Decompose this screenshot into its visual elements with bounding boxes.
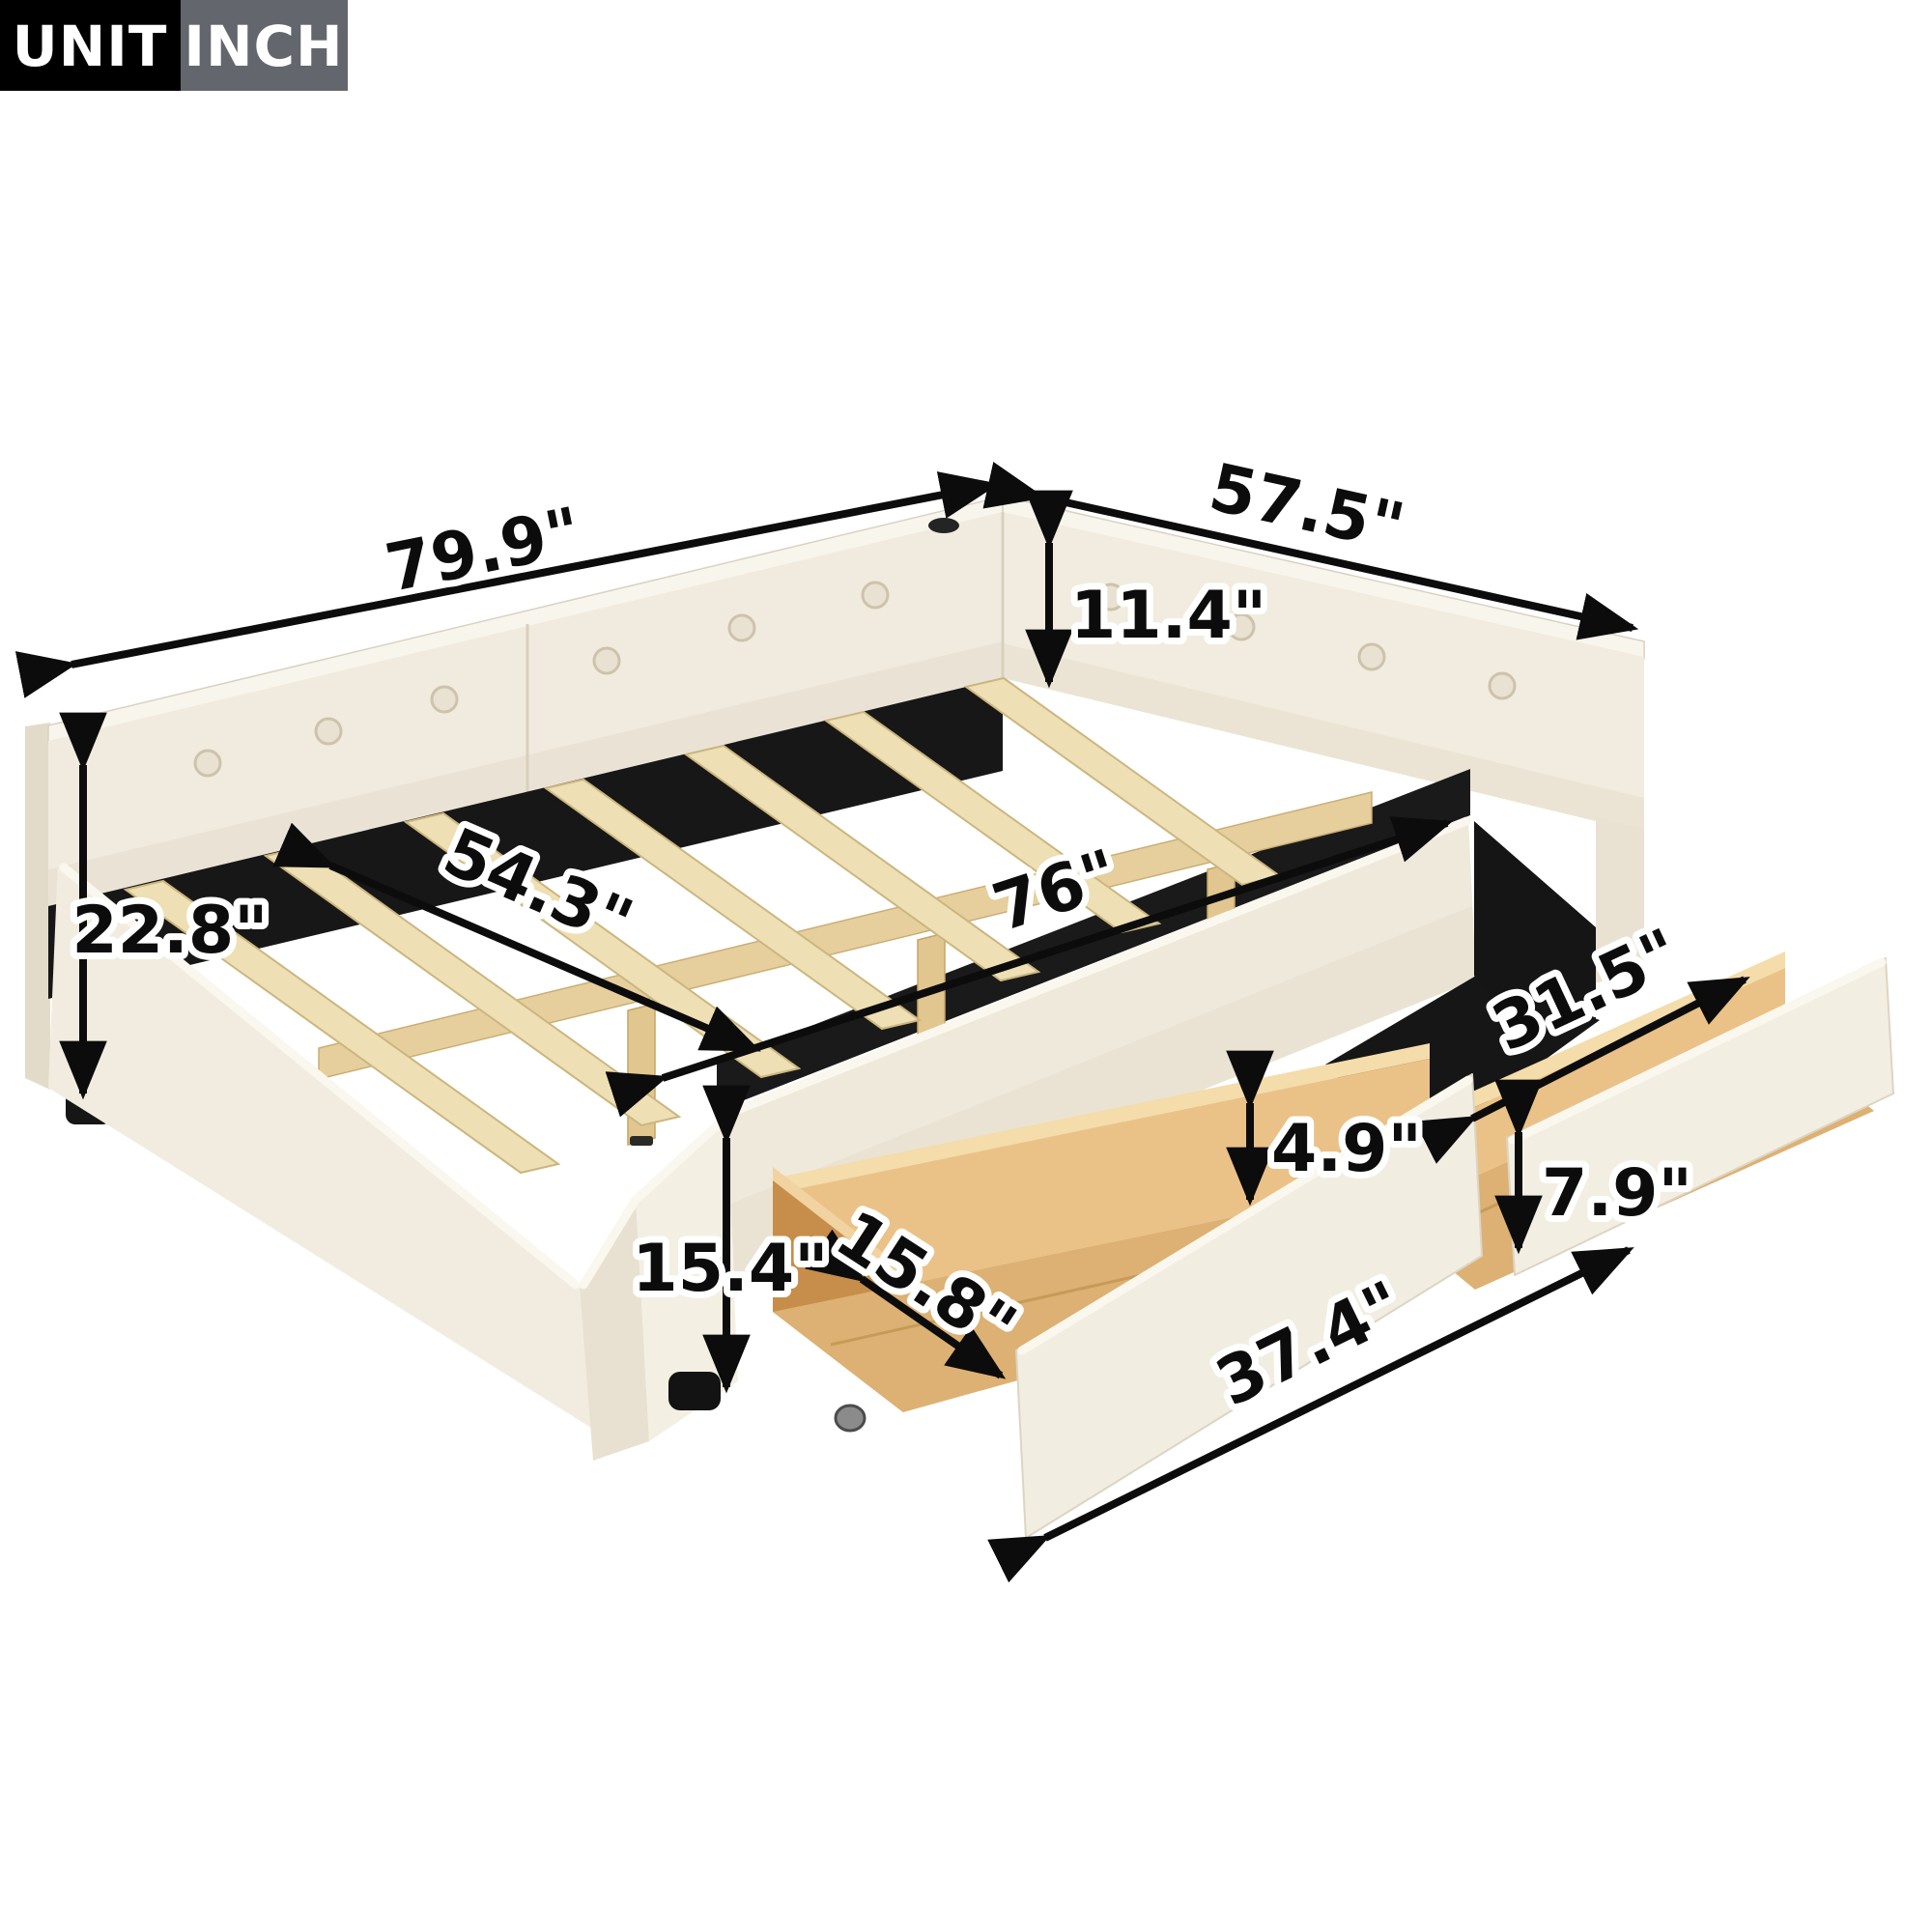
tuft-button	[729, 615, 754, 640]
tuft-button	[316, 719, 341, 744]
usb-port	[928, 518, 959, 533]
dimension-label-drawer-front-height: 7.9"	[1542, 1155, 1692, 1232]
diagram-canvas: 79.9" 57.5" 11.4" 22.8" 54.3" 76" 31.5" …	[0, 0, 1932, 1932]
unit-badge-value: INCH	[184, 14, 343, 79]
daybed-dimension-diagram: 79.9" 57.5" 11.4" 22.8" 54.3" 76" 31.5" …	[0, 0, 1932, 1932]
bed-left-endcap	[25, 723, 50, 1090]
dimension-label-side-height: 15.4"	[632, 1231, 828, 1307]
dimension-label-back-total-height: 22.8"	[71, 893, 268, 969]
tuft-button	[1490, 673, 1515, 698]
dimension-label-drawer-inner-height: 4.9"	[1271, 1111, 1422, 1187]
tuft-button	[1359, 644, 1384, 669]
tuft-button	[863, 582, 888, 608]
foot-corner-leg	[668, 1372, 721, 1410]
tuft-button	[432, 687, 457, 712]
dimension-label-overall-length: 79.9"	[380, 494, 587, 608]
tuft-button	[195, 751, 220, 776]
tuft-button	[594, 648, 619, 673]
dimension-label-backrest-height: 11.4"	[1070, 578, 1266, 654]
unit-badge: UNIT INCH	[0, 0, 348, 91]
unit-badge-label: UNIT	[13, 14, 168, 79]
drawer-caster-wheel	[836, 1406, 865, 1431]
